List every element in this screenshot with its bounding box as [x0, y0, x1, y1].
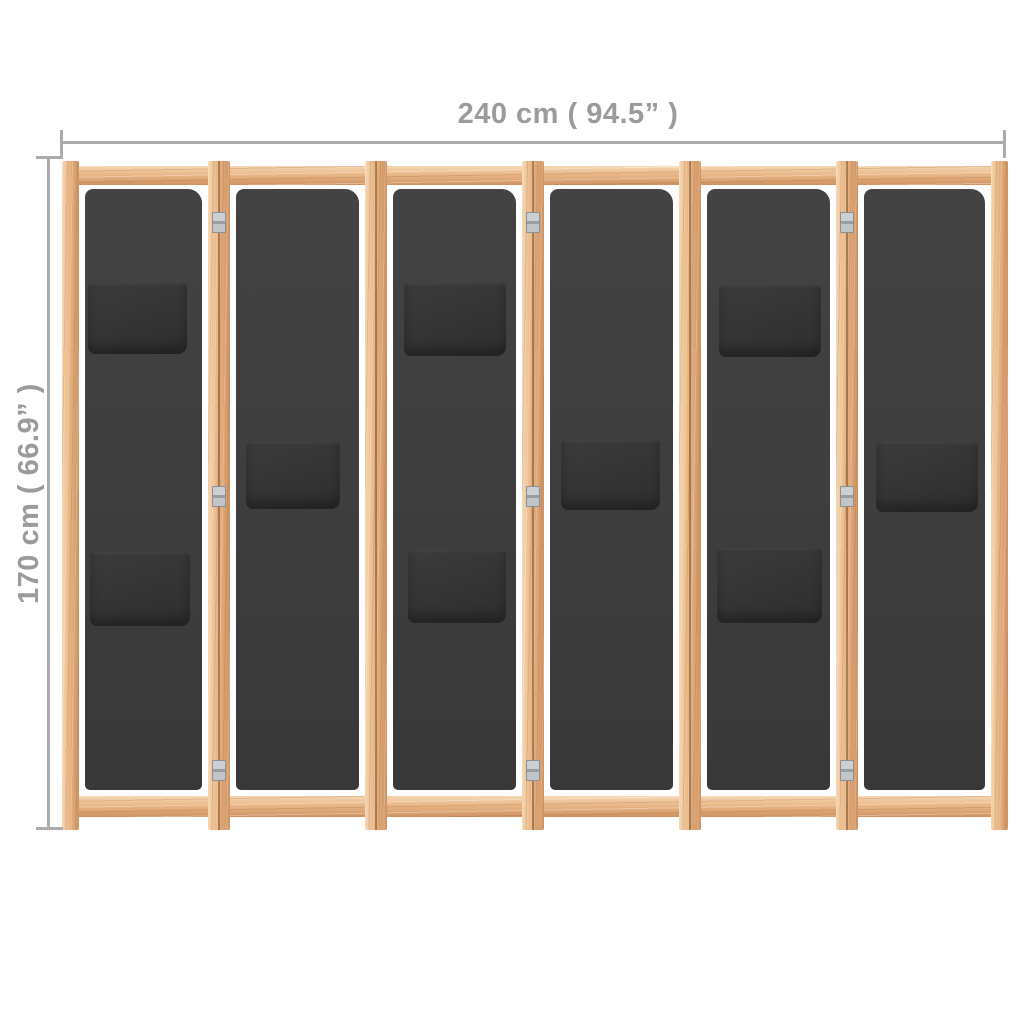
frame-post-1	[62, 161, 79, 830]
panel-pocket	[90, 552, 190, 626]
hinge	[212, 212, 226, 233]
hinge	[840, 760, 854, 781]
width-dimension-tick-right	[1003, 130, 1006, 158]
width-dimension-line	[62, 141, 1006, 144]
panel-pocket	[717, 548, 822, 623]
hinge	[840, 212, 854, 233]
height-dimension-label: 170 cm ( 66.9” )	[10, 158, 48, 830]
hinge	[212, 486, 226, 507]
fabric-panel-5	[707, 189, 830, 790]
frame-post-7	[991, 161, 1008, 830]
frame-post-3	[365, 161, 387, 830]
hinge	[526, 760, 540, 781]
panel-pocket	[88, 283, 187, 354]
hinge	[840, 486, 854, 507]
width-dimension-label: 240 cm ( 94.5” )	[96, 98, 1024, 131]
panel-pocket	[719, 285, 821, 357]
fabric-panel-1	[85, 189, 202, 790]
hinge	[526, 486, 540, 507]
hinge	[212, 760, 226, 781]
panel-pocket	[408, 550, 506, 623]
product-figure: 240 cm ( 94.5” ) 170 cm ( 66.9” )	[0, 0, 1024, 1024]
frame-post-5	[679, 161, 701, 830]
panel-pocket	[876, 442, 978, 512]
panel-pocket	[404, 283, 506, 356]
hinge	[526, 212, 540, 233]
panel-pocket	[561, 440, 660, 510]
fabric-panel-3	[393, 189, 516, 790]
width-dimension-tick-left	[60, 130, 63, 158]
panel-pocket	[246, 442, 340, 509]
